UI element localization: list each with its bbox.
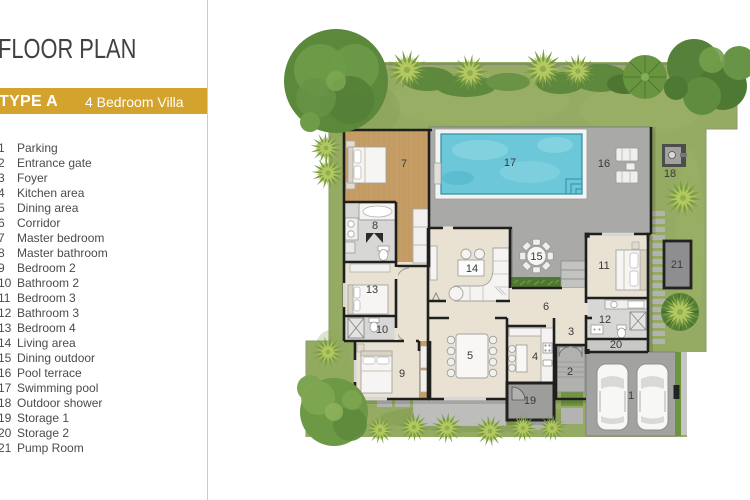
svg-text:14: 14 <box>466 263 478 275</box>
svg-text:9: 9 <box>399 368 405 380</box>
svg-text:6: 6 <box>543 301 549 313</box>
svg-text:19: 19 <box>524 395 536 407</box>
svg-text:11: 11 <box>598 260 609 272</box>
svg-text:17: 17 <box>504 157 516 169</box>
svg-text:21: 21 <box>671 259 683 271</box>
svg-text:5: 5 <box>467 350 473 362</box>
svg-text:2: 2 <box>567 366 573 378</box>
svg-text:13: 13 <box>366 284 378 296</box>
svg-text:7: 7 <box>401 158 407 170</box>
svg-text:8: 8 <box>372 220 378 232</box>
svg-text:18: 18 <box>664 168 676 180</box>
svg-text:10: 10 <box>376 324 388 336</box>
svg-text:4: 4 <box>532 351 538 363</box>
svg-text:20: 20 <box>610 339 622 351</box>
svg-text:16: 16 <box>598 158 610 170</box>
svg-text:15: 15 <box>530 251 542 263</box>
svg-text:1: 1 <box>628 390 634 402</box>
svg-text:12: 12 <box>599 314 611 326</box>
svg-text:3: 3 <box>568 326 574 338</box>
